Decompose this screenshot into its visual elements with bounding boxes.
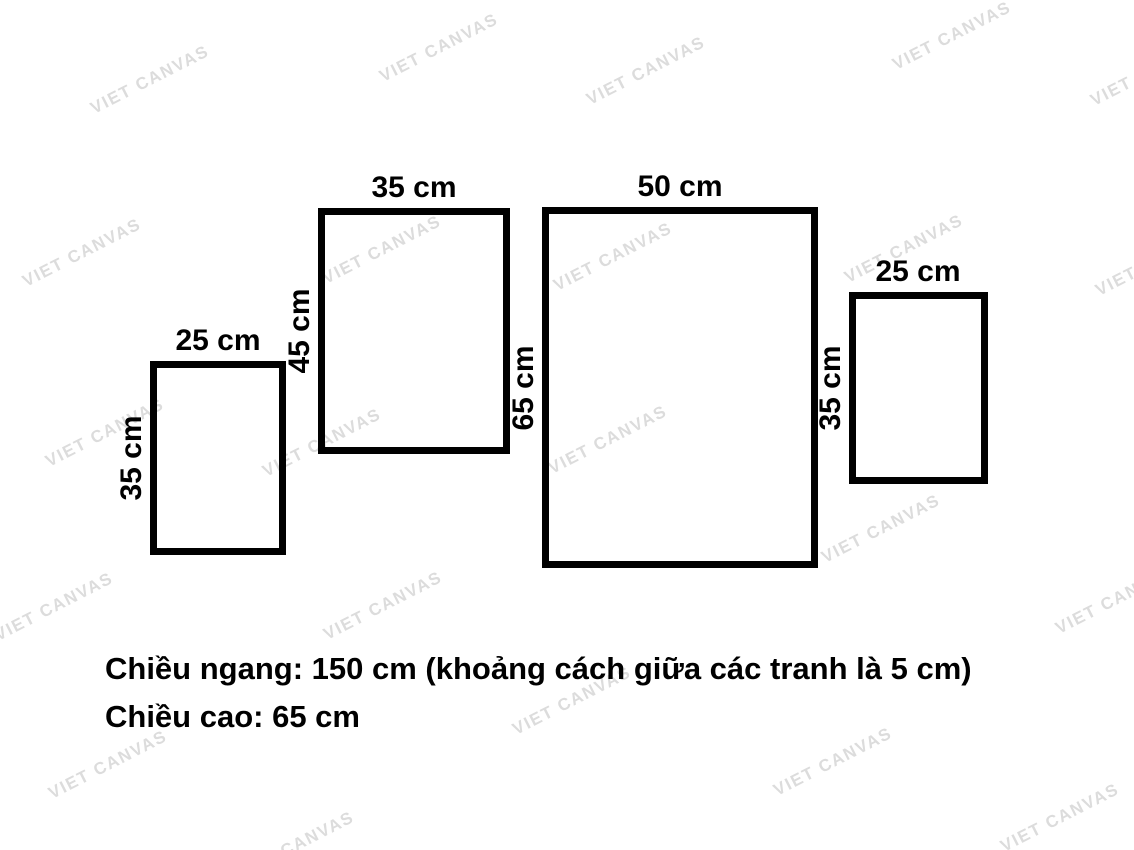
frame-4-outline <box>849 292 988 484</box>
frames-diagram: 25 cm 35 cm 35 cm 45 cm 50 cm 65 cm 25 c… <box>0 0 1134 850</box>
canvas-size-diagram: VIET CANVAS VIET CANVAS VIET CANVAS VIET… <box>0 0 1134 850</box>
frame-1-outline <box>150 361 286 555</box>
frame-2-width-label: 35 cm <box>371 173 456 203</box>
caption-line-total-width: Chiều ngang: 150 cm (khoảng cách giữa cá… <box>105 645 972 693</box>
dimensions-caption: Chiều ngang: 150 cm (khoảng cách giữa cá… <box>105 645 972 741</box>
frame-1-height-label: 35 cm <box>117 415 147 500</box>
frame-4-height-label: 35 cm <box>816 345 846 430</box>
frame-2-height-label: 45 cm <box>285 288 315 373</box>
frame-3-outline <box>542 207 818 568</box>
caption-line-total-height: Chiều cao: 65 cm <box>105 693 972 741</box>
frame-3-width-label: 50 cm <box>637 172 722 202</box>
frame-2-outline <box>318 208 510 454</box>
frame-3-height-label: 65 cm <box>509 345 539 430</box>
frame-4-width-label: 25 cm <box>875 257 960 287</box>
frame-1-width-label: 25 cm <box>175 326 260 356</box>
